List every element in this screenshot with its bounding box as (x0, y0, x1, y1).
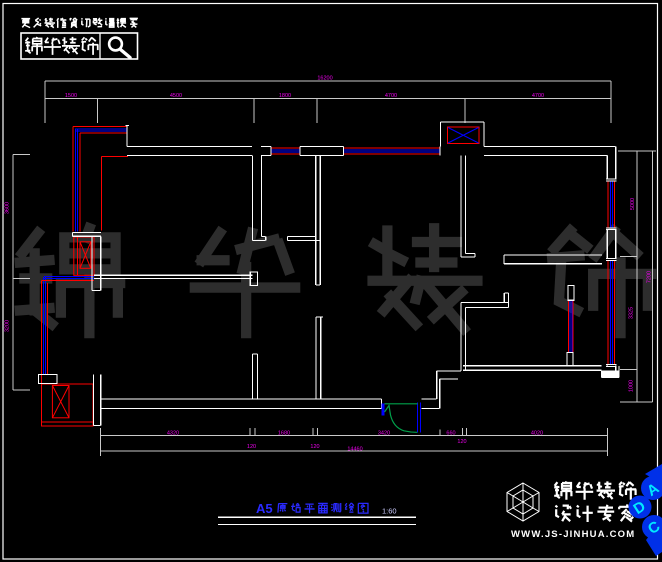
svg-text:4320: 4320 (167, 430, 179, 436)
svg-text:7200: 7200 (647, 271, 653, 283)
svg-text:120: 120 (457, 439, 466, 445)
svg-text:3600: 3600 (5, 202, 11, 214)
svg-text:3420: 3420 (378, 430, 390, 436)
svg-text:4700: 4700 (532, 93, 544, 99)
svg-text:4020: 4020 (531, 430, 543, 436)
svg-text:120: 120 (310, 444, 319, 450)
svg-text:1000: 1000 (629, 380, 635, 392)
svg-text:120: 120 (247, 444, 256, 450)
svg-text:1800: 1800 (279, 93, 291, 99)
svg-text:4700: 4700 (385, 93, 397, 99)
svg-text:660: 660 (446, 430, 455, 436)
svg-text:3325: 3325 (629, 307, 635, 319)
svg-text:1680: 1680 (278, 430, 290, 436)
svg-text:3200: 3200 (5, 320, 11, 332)
svg-text:16200: 16200 (317, 76, 332, 82)
svg-text:1:60: 1:60 (382, 507, 397, 516)
svg-text:4500: 4500 (170, 93, 182, 99)
svg-text:A5: A5 (256, 501, 273, 516)
svg-text:WWW.JS-JINHUA.COM: WWW.JS-JINHUA.COM (511, 529, 635, 540)
svg-text:14460: 14460 (347, 446, 362, 452)
svg-text:1500: 1500 (65, 93, 77, 99)
svg-text:5000: 5000 (630, 198, 636, 210)
